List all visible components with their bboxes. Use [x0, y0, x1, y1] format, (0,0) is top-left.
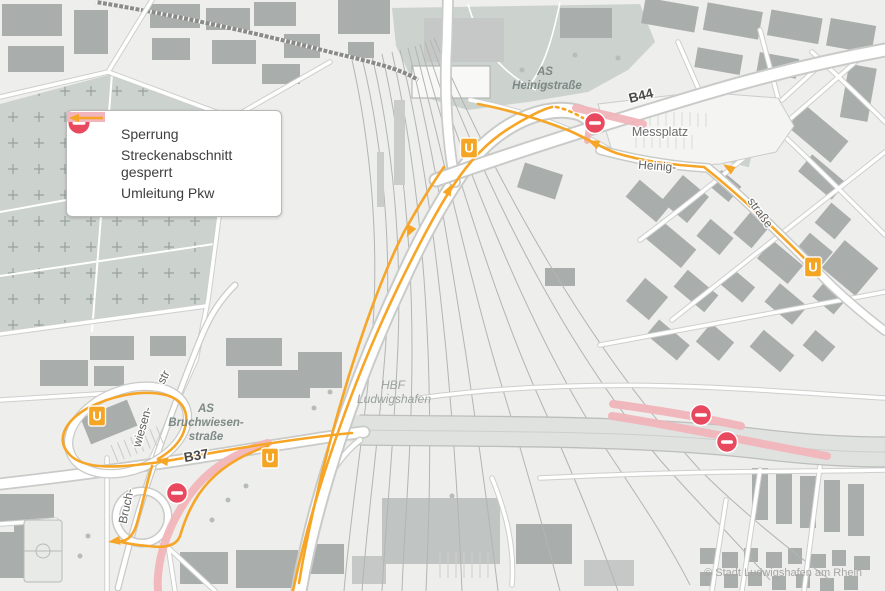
no-entry-icon: [167, 483, 188, 504]
svg-text:Ludwigshafen: Ludwigshafen: [357, 392, 431, 406]
label-as-heinigstrasse: AS: [536, 66, 553, 78]
legend-label: Sperrung: [121, 126, 179, 143]
no-entry-icon: [585, 113, 606, 134]
u-station-marker: U: [461, 138, 478, 158]
svg-text:straße: straße: [189, 431, 224, 443]
label-heinig: Heinig-: [638, 158, 677, 175]
u-station-marker: U: [89, 406, 106, 426]
legend-panel: Sperrung Streckenabschnitt gesperrt Umle…: [66, 110, 282, 217]
svg-text:Heinigstraße: Heinigstraße: [512, 80, 582, 92]
label-hbf: HBF: [381, 378, 406, 392]
u-station-marker: U: [805, 257, 822, 277]
svg-text:U: U: [92, 409, 101, 424]
svg-text:U: U: [808, 260, 817, 275]
label-messplatz: Messplatz: [632, 125, 688, 139]
legend-item-sperrung: Sperrung: [77, 126, 269, 143]
u-station-marker: U: [262, 448, 279, 468]
no-entry-icon: [717, 432, 738, 453]
legend-item-streckenabschnitt: Streckenabschnitt gesperrt: [77, 147, 269, 181]
closed-segment-icon: [77, 147, 121, 151]
svg-text:U: U: [265, 451, 274, 466]
sports-field: [24, 520, 62, 582]
map-screenshot: U U U U: [0, 0, 885, 591]
no-entry-icon: [691, 405, 712, 426]
copyright-notice: © Stadt Ludwigshafen am Rhein: [704, 567, 862, 579]
label-as-bruchwiesenstrasse: AS: [197, 403, 214, 415]
legend-item-umleitung: Umleitung Pkw: [77, 185, 269, 202]
map-canvas[interactable]: U U U U: [0, 0, 885, 591]
legend-label: Streckenabschnitt gesperrt: [121, 147, 232, 181]
svg-text:U: U: [464, 141, 473, 156]
legend-label: Umleitung Pkw: [121, 185, 214, 202]
svg-text:Bruchwiesen-: Bruchwiesen-: [168, 417, 244, 429]
